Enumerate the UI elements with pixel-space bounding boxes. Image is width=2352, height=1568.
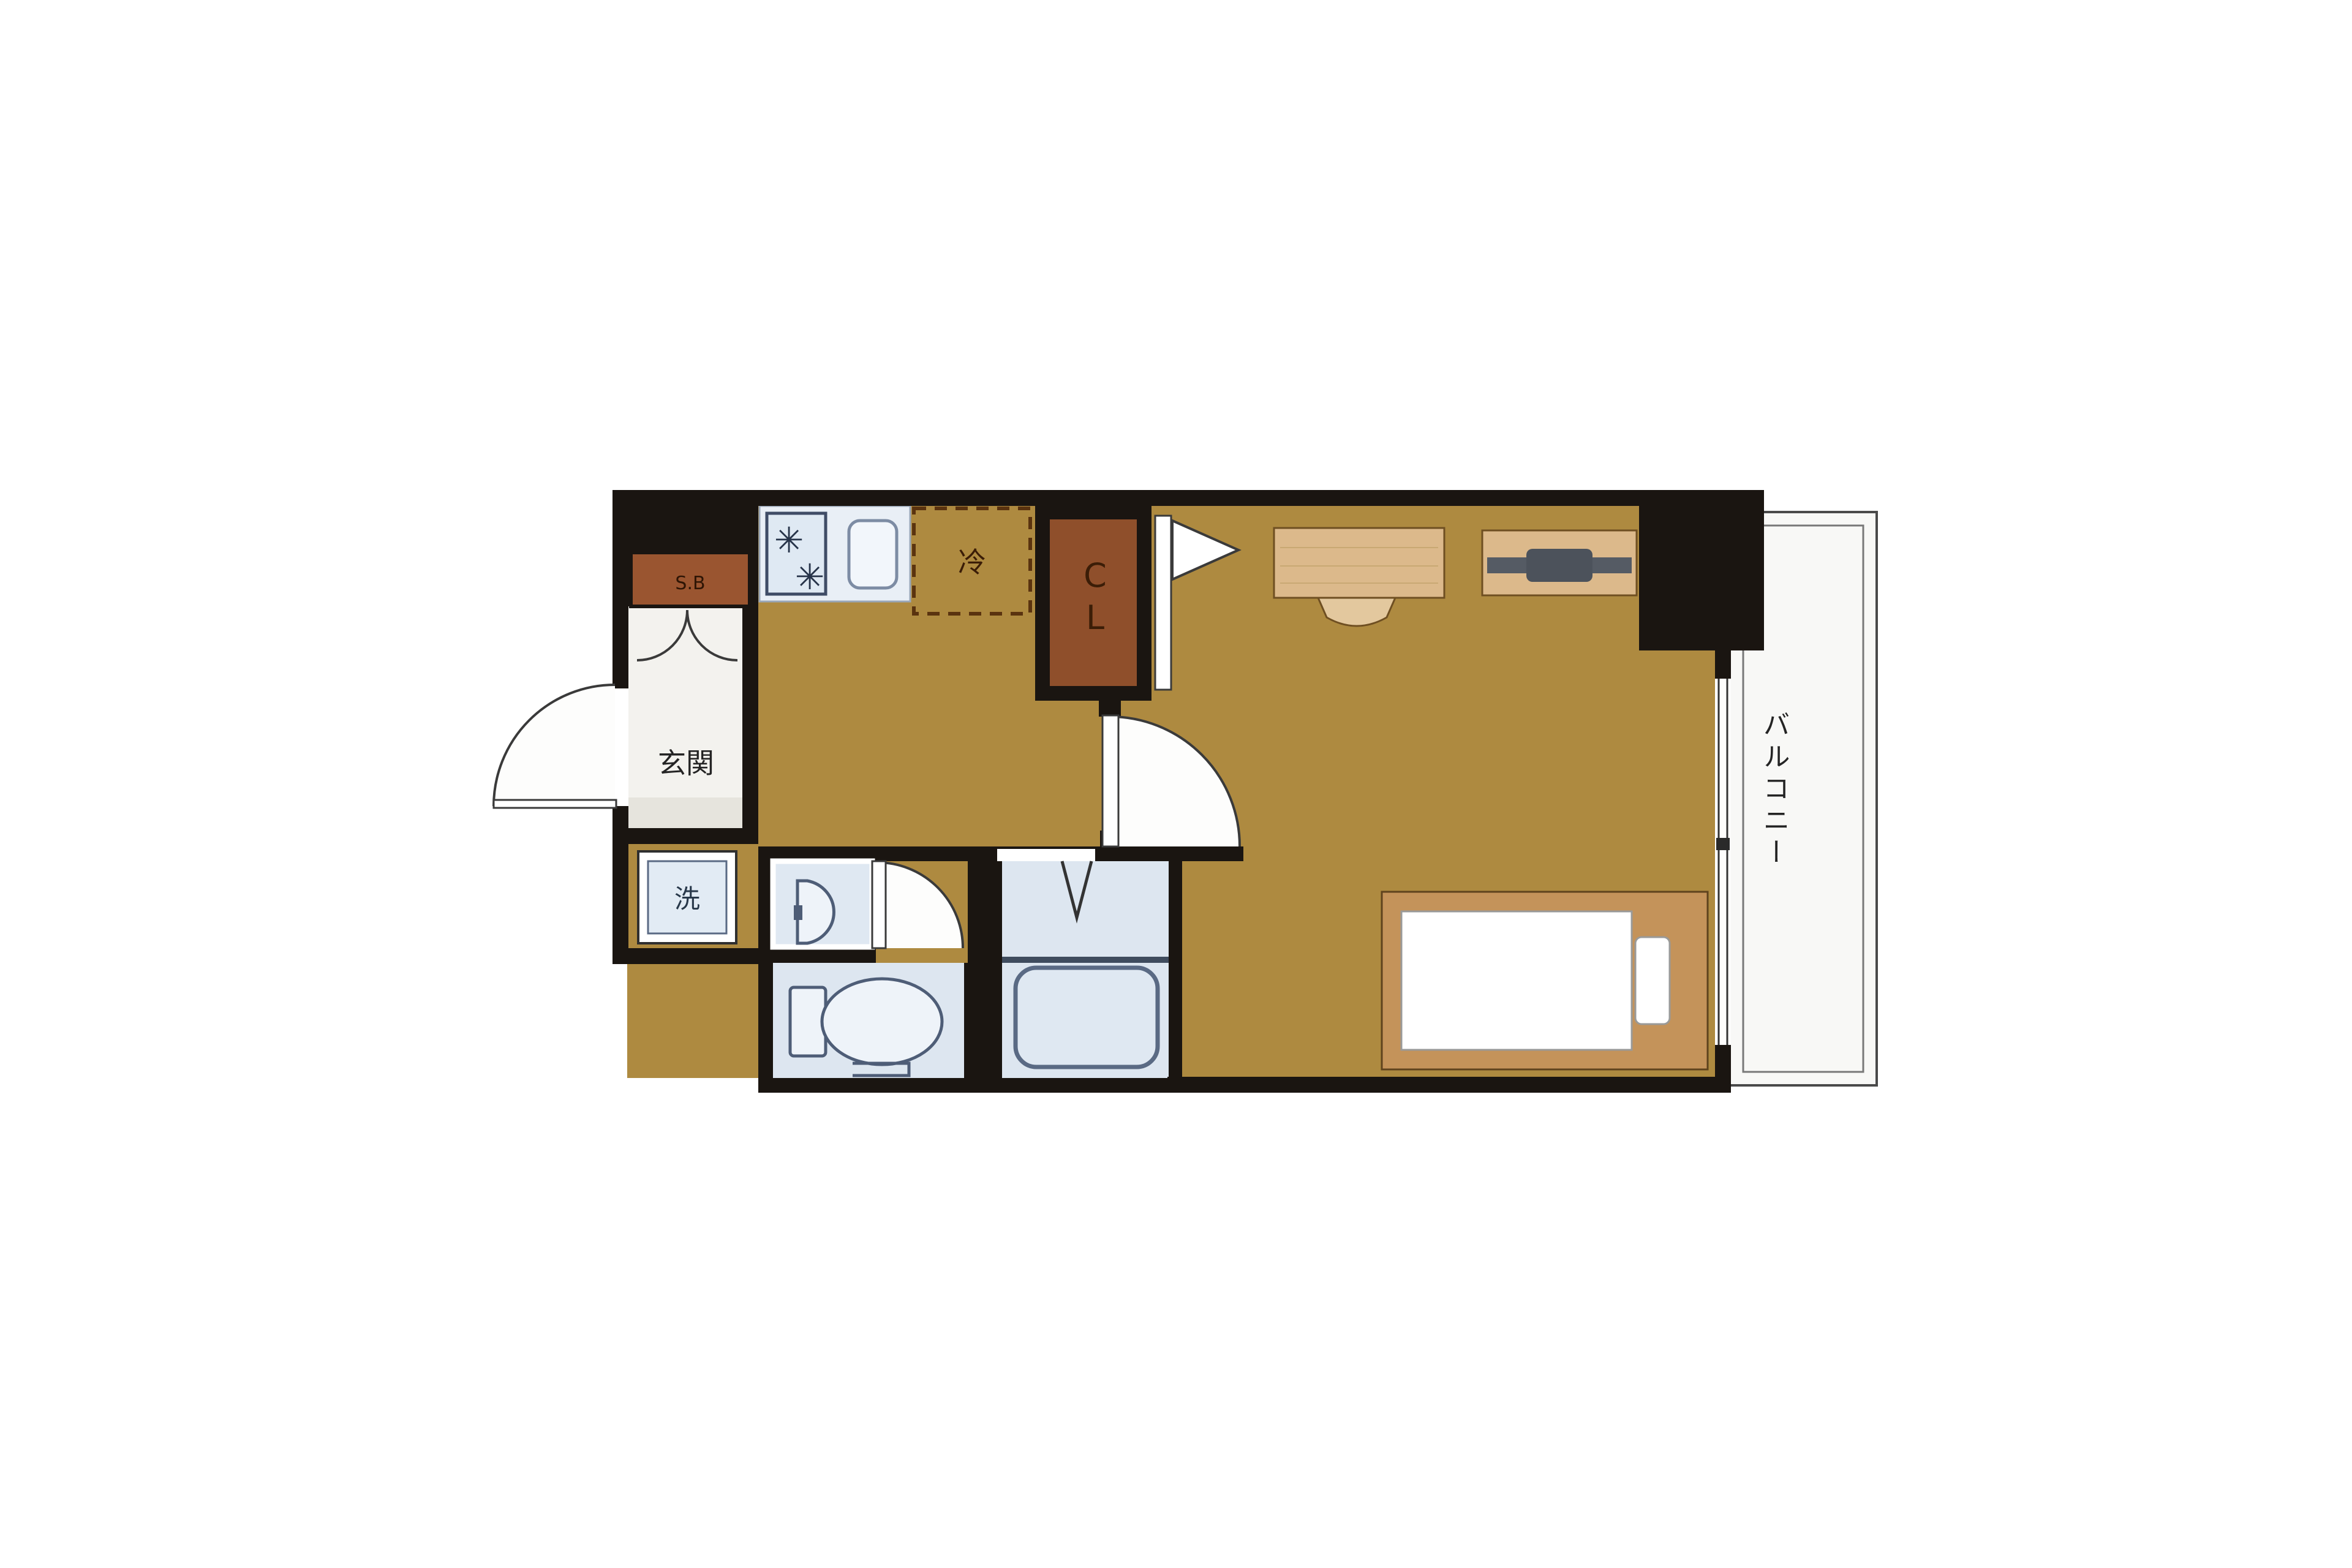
stove-burner-icon: ✳ xyxy=(795,556,825,598)
entrance-bottom-wall xyxy=(627,828,758,844)
balcony-window xyxy=(1715,679,1731,1045)
closet-door-leaf xyxy=(1155,516,1171,690)
top-wall xyxy=(612,490,1764,506)
desk xyxy=(1274,528,1444,598)
top-right-pillar xyxy=(1639,490,1764,650)
floor-plan: バルコニー 玄関 xyxy=(0,0,2352,1568)
entrance-area: 玄関 xyxy=(627,605,742,828)
left-wall-lower xyxy=(612,806,628,963)
door-stub-upper xyxy=(1099,692,1121,717)
entrance-door xyxy=(494,685,628,808)
washer-label: 洗 xyxy=(674,884,700,914)
entrance-door-leaf xyxy=(494,800,616,808)
shoe-box-label: S.B xyxy=(675,573,705,594)
window-top-stub xyxy=(1715,650,1731,679)
toilet-room-top-wall xyxy=(758,948,876,963)
shoe-box: S.B xyxy=(631,552,750,606)
entrance-floor xyxy=(627,605,742,828)
washbasin-faucet-icon xyxy=(794,905,802,920)
refrigerator-label: 冷 xyxy=(958,546,986,579)
bath-divider-line xyxy=(1002,957,1169,963)
entrance-column-bottom-wall xyxy=(612,948,758,964)
entrance-step xyxy=(627,797,742,828)
tv-screen-icon xyxy=(1526,549,1593,582)
window-meeting-stile xyxy=(1716,838,1730,850)
toilet-bowl-icon xyxy=(822,979,942,1065)
sanitary-block xyxy=(758,846,1243,1093)
washer-space: 洗 xyxy=(638,851,736,943)
closet-label: CL xyxy=(1076,556,1115,641)
window-glass xyxy=(1715,679,1731,1045)
bed-pillow xyxy=(1635,937,1670,1024)
floor-plan-page: バルコニー 玄関 xyxy=(0,0,2352,1568)
bathroom-door-opening xyxy=(997,849,1095,861)
bathtub-icon xyxy=(1016,968,1158,1067)
entrance-label: 玄関 xyxy=(658,747,714,780)
bed xyxy=(1382,892,1708,1069)
door-closing-wall xyxy=(1182,846,1243,861)
stove-burner-icon: ✳ xyxy=(774,519,804,561)
left-wall-upper xyxy=(612,490,628,688)
bottom-wall xyxy=(1167,1077,1730,1093)
toilet-door-leaf xyxy=(872,861,886,948)
tv-board-area xyxy=(1482,530,1637,595)
toilet-tank-icon xyxy=(790,987,826,1056)
living-door-leaf xyxy=(1102,715,1118,846)
bathtub-area xyxy=(1002,957,1169,1067)
entrance-right-wall xyxy=(742,582,758,843)
balcony-label: バルコニー xyxy=(1758,710,1790,870)
bed-mattress xyxy=(1401,911,1632,1050)
kitchen-sink-icon xyxy=(849,521,897,588)
kitchen: ✳ ✳ xyxy=(759,506,910,601)
washbasin-unit xyxy=(773,861,872,947)
entrance-door-swing-area xyxy=(494,685,615,806)
